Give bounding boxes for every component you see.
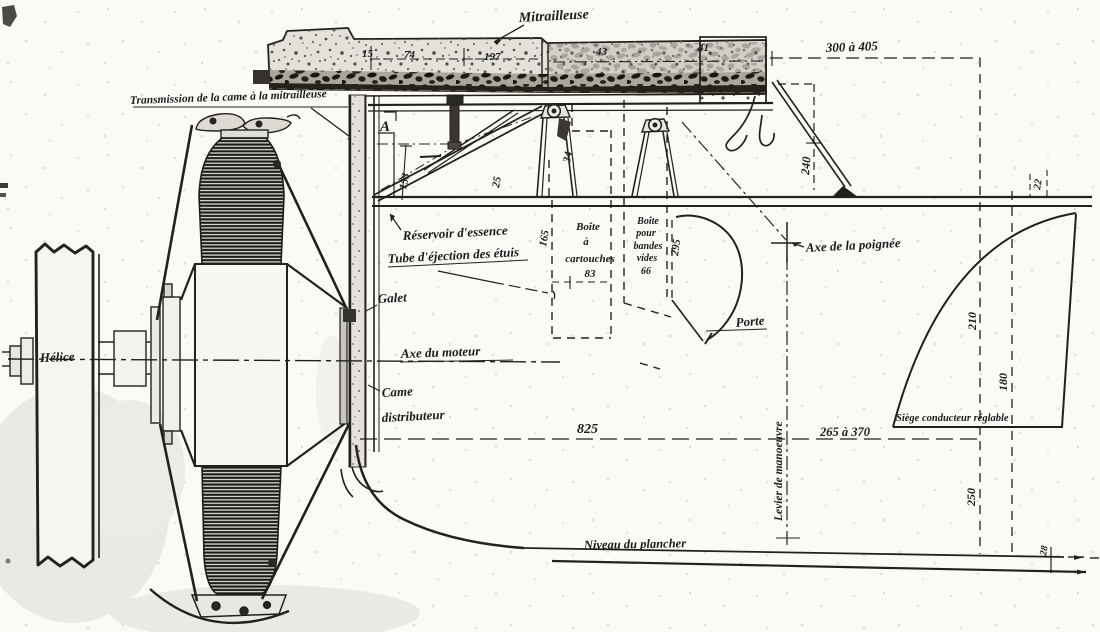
svg-text:74: 74 <box>404 49 416 61</box>
svg-text:250: 250 <box>964 488 978 507</box>
svg-text:vides: vides <box>637 253 658 264</box>
svg-text:Came: Came <box>381 383 413 400</box>
svg-text:Hélice: Hélice <box>39 349 75 365</box>
svg-text:Boîte: Boîte <box>636 216 659 227</box>
svg-text:295: 295 <box>669 238 683 257</box>
svg-text:cartouches: cartouches <box>565 253 615 265</box>
svg-text:240: 240 <box>798 156 814 176</box>
svg-text:Niveau du plancher: Niveau du plancher <box>583 536 686 552</box>
svg-text:265 à 370: 265 à 370 <box>819 425 871 439</box>
svg-text:28: 28 <box>1038 545 1051 558</box>
svg-text:825: 825 <box>577 422 598 437</box>
svg-text:à: à <box>583 236 589 248</box>
svg-text:197: 197 <box>484 51 501 63</box>
svg-text:180: 180 <box>996 373 1010 391</box>
svg-text:83: 83 <box>585 268 597 280</box>
svg-text:bandes: bandes <box>634 241 663 252</box>
svg-text:Axe du moteur: Axe du moteur <box>400 343 482 361</box>
svg-text:300 à 405: 300 à 405 <box>825 38 879 55</box>
svg-text:43: 43 <box>595 46 608 58</box>
svg-text:A: A <box>379 119 390 135</box>
svg-text:Porte: Porte <box>735 313 765 330</box>
svg-text:Galet: Galet <box>377 289 407 306</box>
svg-text:pour: pour <box>635 228 656 239</box>
svg-text:Boîte: Boîte <box>575 221 600 233</box>
svg-text:66: 66 <box>641 266 651 277</box>
svg-text:210: 210 <box>965 312 979 331</box>
svg-text:41: 41 <box>697 42 709 54</box>
svg-text:15: 15 <box>362 48 374 60</box>
svg-text:Siège conducteur réglable: Siège conducteur réglable <box>896 413 1009 424</box>
svg-text:Levier de manoeuvre: Levier de manoeuvre <box>773 421 785 522</box>
